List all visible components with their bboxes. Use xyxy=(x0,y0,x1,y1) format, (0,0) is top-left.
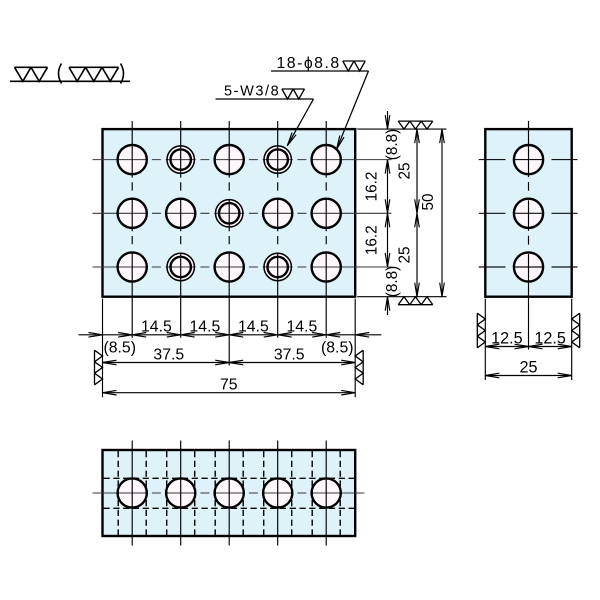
svg-text:5-W3/8: 5-W3/8 xyxy=(224,84,280,100)
svg-text:12.5: 12.5 xyxy=(491,330,523,348)
svg-text:(8.5): (8.5) xyxy=(104,340,136,357)
svg-text:25: 25 xyxy=(397,246,414,263)
svg-text:75: 75 xyxy=(220,377,238,394)
svg-text:(8.8): (8.8) xyxy=(384,129,401,160)
svg-text:37.5: 37.5 xyxy=(153,346,184,363)
svg-text:25: 25 xyxy=(519,359,537,377)
svg-text:25: 25 xyxy=(397,162,414,179)
svg-text:37.5: 37.5 xyxy=(274,346,305,363)
svg-text:14.5: 14.5 xyxy=(287,319,318,336)
svg-text:14.5: 14.5 xyxy=(190,319,221,336)
svg-text:(8.5): (8.5) xyxy=(321,340,353,357)
svg-text:12.5: 12.5 xyxy=(534,330,566,348)
svg-text:16.2: 16.2 xyxy=(364,225,381,255)
svg-text:14.5: 14.5 xyxy=(238,319,269,336)
svg-text:(8.8): (8.8) xyxy=(384,266,401,297)
svg-text:16.2: 16.2 xyxy=(364,172,381,202)
svg-text:18-ϕ8.8: 18-ϕ8.8 xyxy=(277,55,341,72)
svg-text:50: 50 xyxy=(420,193,437,210)
svg-text:14.5: 14.5 xyxy=(141,319,172,336)
